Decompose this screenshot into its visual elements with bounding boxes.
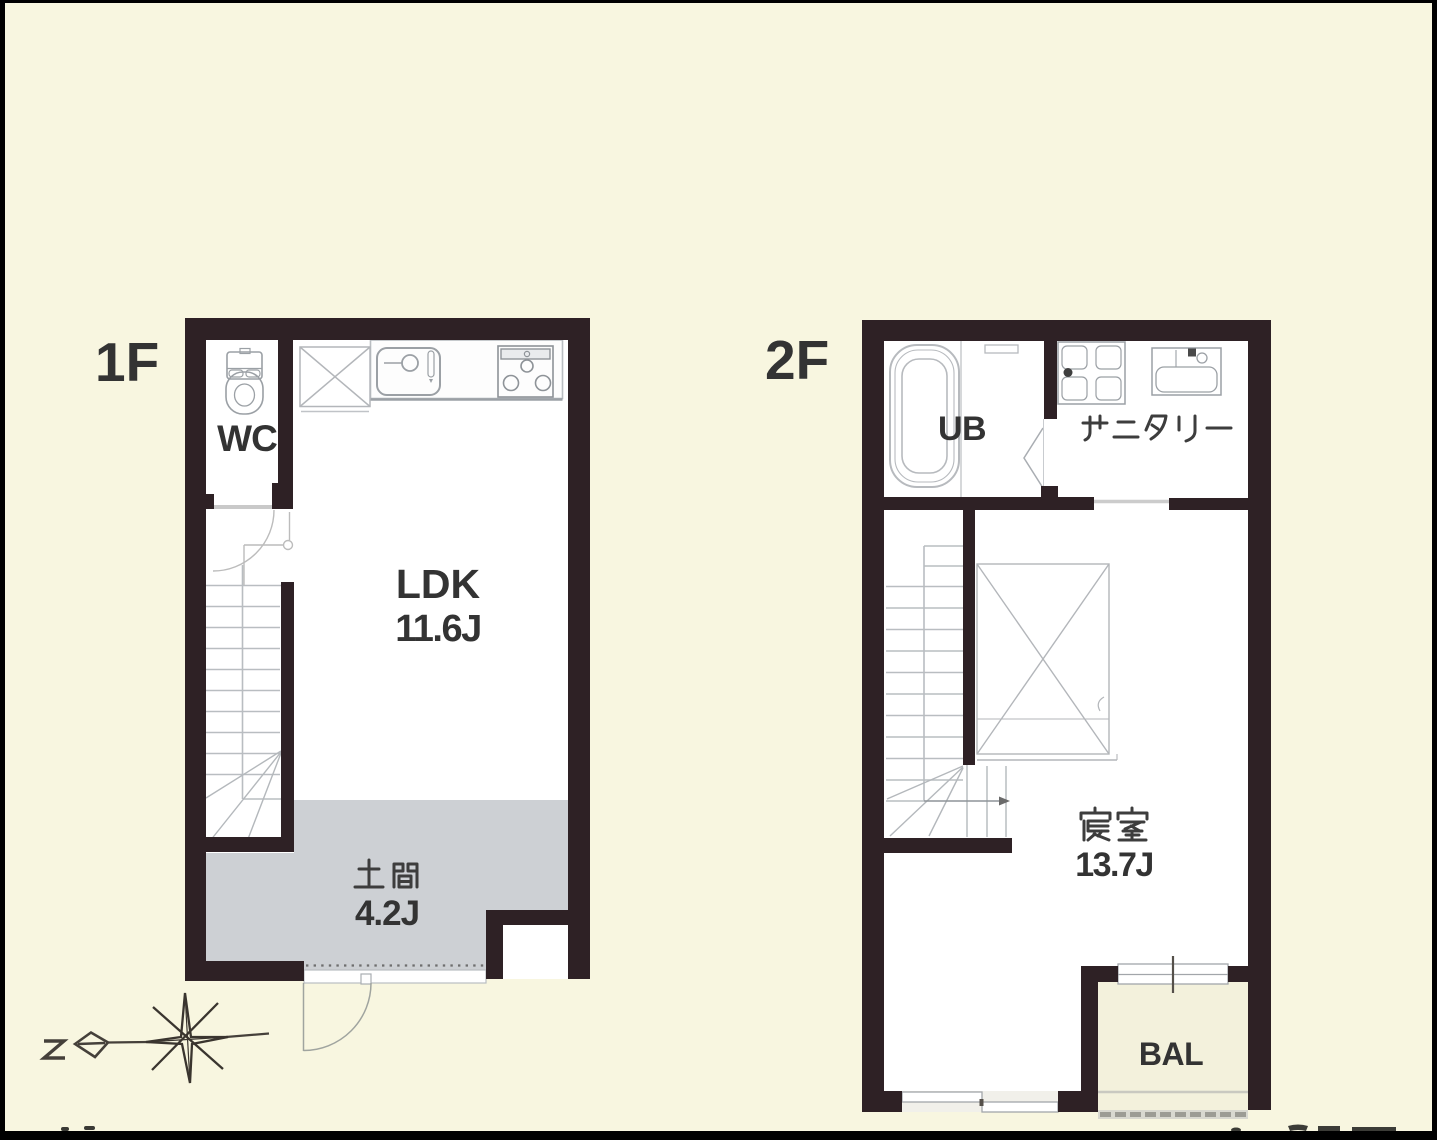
svg-text:11.6J: 11.6J <box>395 608 481 650</box>
svg-text:WC: WC <box>217 418 277 459</box>
svg-text:UB: UB <box>938 410 986 448</box>
svg-text:1F: 1F <box>95 331 159 393</box>
svg-text:2F: 2F <box>765 329 829 391</box>
svg-text:LDK: LDK <box>396 561 481 607</box>
svg-text:BAL: BAL <box>1139 1036 1203 1072</box>
svg-text:13.7J: 13.7J <box>1075 846 1153 884</box>
svg-text:4.2J: 4.2J <box>355 894 419 933</box>
